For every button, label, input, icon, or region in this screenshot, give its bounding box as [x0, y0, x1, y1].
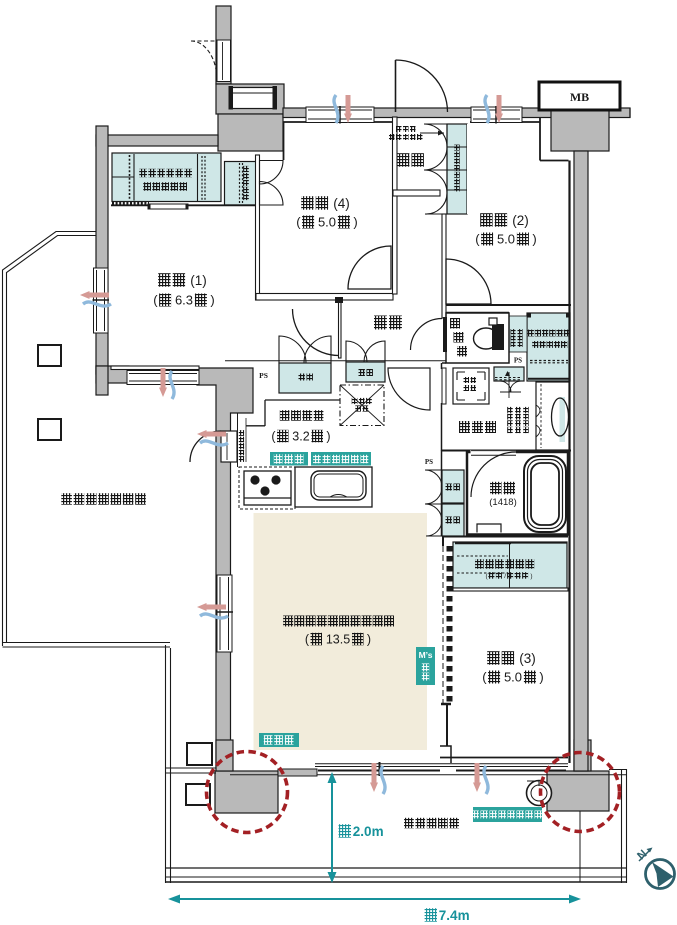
svg-text:): ) [353, 215, 357, 230]
svg-text:/: / [504, 573, 506, 580]
svg-text:5.0: 5.0 [497, 232, 515, 247]
svg-text:5.0: 5.0 [318, 215, 336, 230]
svg-text:): ) [367, 633, 371, 647]
svg-text:): ) [530, 573, 532, 580]
svg-text:(4): (4) [333, 196, 350, 211]
svg-text:PS: PS [514, 357, 522, 365]
svg-text:(3): (3) [519, 651, 536, 666]
svg-text:): ) [210, 293, 214, 308]
svg-text:MB: MB [570, 90, 589, 104]
svg-text:(1): (1) [190, 273, 207, 288]
svg-text:): ) [532, 232, 536, 247]
svg-text:2.0m: 2.0m [353, 824, 384, 839]
svg-text:(: ( [475, 232, 480, 247]
svg-text:(1418): (1418) [489, 497, 516, 508]
svg-text:6.3: 6.3 [175, 293, 193, 308]
svg-text:13.5: 13.5 [326, 633, 350, 647]
svg-text:(: ( [296, 215, 301, 230]
svg-text:PS: PS [259, 371, 268, 380]
svg-text:M’s: M’s [419, 650, 433, 660]
svg-text:(2): (2) [512, 213, 529, 228]
svg-text:): ) [326, 430, 330, 444]
svg-text:3.2: 3.2 [292, 430, 309, 444]
svg-text:7.4m: 7.4m [439, 908, 470, 923]
svg-text:PS: PS [425, 458, 433, 466]
svg-text:(: ( [482, 670, 487, 685]
svg-text:): ) [539, 670, 543, 685]
svg-text:5.0: 5.0 [504, 670, 522, 685]
svg-text:(: ( [153, 293, 158, 308]
